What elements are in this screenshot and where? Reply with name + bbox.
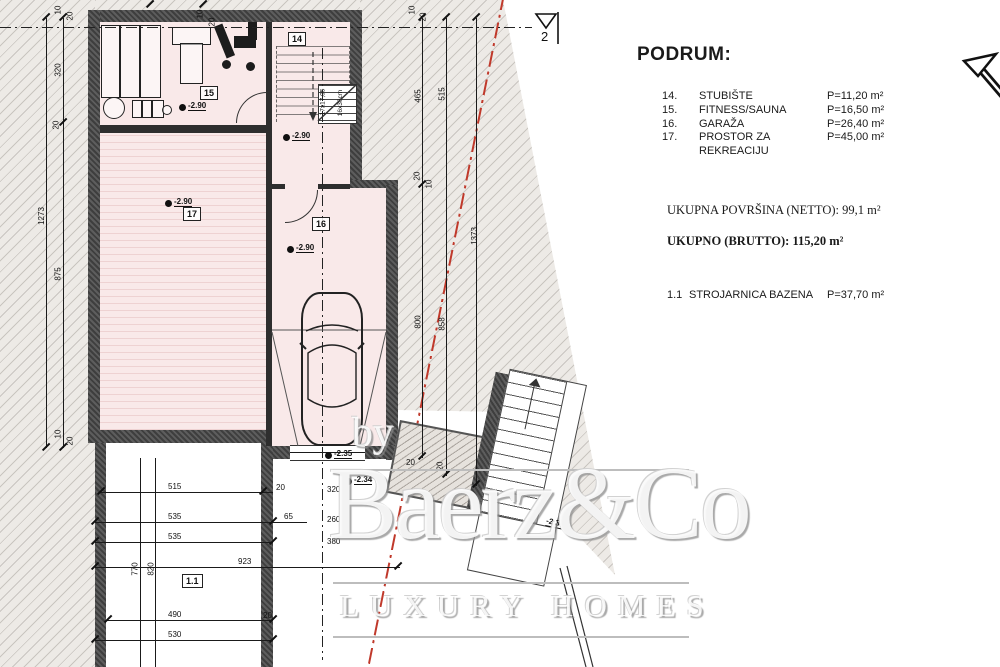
dim-label: 800 <box>415 315 423 328</box>
dim-label: 515 <box>168 483 181 491</box>
dim-label: 535 <box>168 533 181 541</box>
level-17: -2.90 <box>174 197 192 207</box>
legend-brutto: UKUPNO (BRUTTO): 115,20 m² <box>667 234 967 249</box>
legend-row-17: 17. PROSTOR ZA REKREACIJU P=45,00 m² <box>662 131 967 159</box>
legend-room-area: P=45,00 m² <box>827 131 917 159</box>
dim-label: 10 <box>54 6 62 15</box>
legend-room-number: 17. <box>662 131 699 159</box>
dim-label: 1373 <box>471 227 479 245</box>
legend-room-number: 14. <box>662 90 699 104</box>
dim-label: 65 <box>284 513 293 521</box>
dim-line <box>63 18 64 448</box>
dim-label: 20 <box>413 172 421 181</box>
legend-netto: UKUPNA POVRŠINA (NETTO): 99,1 m² <box>667 203 967 218</box>
legend-room-name: STUBIŠTE <box>699 90 827 104</box>
room-tag-14: 14 <box>288 32 306 46</box>
dim-line <box>100 492 273 493</box>
legend-room-name: PROSTOR ZA REKREACIJU <box>699 131 827 159</box>
level-dot <box>179 104 186 111</box>
room-tag-16: 16 <box>312 217 330 231</box>
dim-label: 923 <box>238 558 251 566</box>
legend-row-1-1: 1.1 STROJARNICA BAZENA P=37,70 m² <box>667 289 967 303</box>
stair-direction-arrow <box>309 52 356 121</box>
dim-line <box>140 458 141 667</box>
dim-line <box>422 18 423 458</box>
watermark-name: Baerz&Co <box>328 452 749 556</box>
legend-room-name: GARAŽA <box>699 118 827 132</box>
dim-label: 20 <box>66 437 74 446</box>
legend-row-14: 14. STUBIŠTE P=11,20 m² <box>662 90 967 104</box>
dim-label: 535 <box>168 513 181 521</box>
dim-label: 530 <box>168 631 181 639</box>
legend-panel: PODRUM: 14. STUBIŠTE P=11,20 m² 15. FITN… <box>637 44 967 303</box>
dim-label: 1273 <box>38 207 46 225</box>
legend-room-area: P=16,50 m² <box>827 104 917 118</box>
legend-extra-number: 1.1 <box>667 289 689 303</box>
dim-label: 875 <box>55 267 63 280</box>
dim-line <box>95 640 273 641</box>
legend-extra-area: P=37,70 m² <box>827 289 884 303</box>
dim-line <box>107 620 273 621</box>
legend-room-number: 16. <box>662 118 699 132</box>
dim-label: 770 <box>132 562 140 575</box>
dim-label: 10 <box>425 180 433 189</box>
room-tag-1-1: 1.1 <box>182 574 203 588</box>
legend-room-number: 15. <box>662 104 699 118</box>
legend-row-16: 16. GARAŽA P=26,40 m² <box>662 118 967 132</box>
legend-room-name: FITNESS/SAUNA <box>699 104 827 118</box>
dim-line <box>476 18 477 486</box>
level-16: -2.90 <box>296 243 314 253</box>
dim-label: 20 <box>208 18 216 27</box>
dim-label: 820 <box>148 562 156 575</box>
watermark-line-bottom <box>333 636 689 638</box>
dim-label: 515 <box>439 87 447 100</box>
level-15: -2.90 <box>188 101 206 111</box>
dim-label: 20 <box>276 484 285 492</box>
dim-label: 490 <box>168 611 181 619</box>
dim-line <box>95 542 273 543</box>
dim-label: 465 <box>415 89 423 102</box>
watermark-tagline: LUXURY HOMES <box>340 590 715 621</box>
level-dot <box>165 200 172 207</box>
level-hall: -2.90 <box>292 131 310 141</box>
dim-label: 858 <box>439 317 447 330</box>
dim-line <box>46 18 47 448</box>
legend-extra-name: STROJARNICA BAZENA <box>689 289 827 303</box>
legend-room-area: P=26,40 m² <box>827 118 917 132</box>
dim-label: 320 <box>55 63 63 76</box>
dim-label: 20 <box>66 12 74 21</box>
room-tag-15: 15 <box>200 86 218 100</box>
level-dot <box>283 134 290 141</box>
dim-label: 10 <box>196 10 204 19</box>
dim-label: 10 <box>54 430 62 439</box>
section-marker-number: 2 <box>541 30 548 43</box>
legend-row-15: 15. FITNESS/SAUNA P=16,50 m² <box>662 104 967 118</box>
floor-plan-page: 17x17,05 16x36cm <box>0 0 1000 667</box>
dim-line <box>95 522 307 523</box>
legend-room-area: P=11,20 m² <box>827 90 917 104</box>
legend-title: PODRUM: <box>637 44 967 66</box>
level-dot <box>287 246 294 253</box>
cursor-arrow-icon <box>964 54 1000 108</box>
room-tag-17: 17 <box>183 207 201 221</box>
watermark-line-mid <box>333 582 689 584</box>
dim-label: 10 <box>408 6 416 15</box>
